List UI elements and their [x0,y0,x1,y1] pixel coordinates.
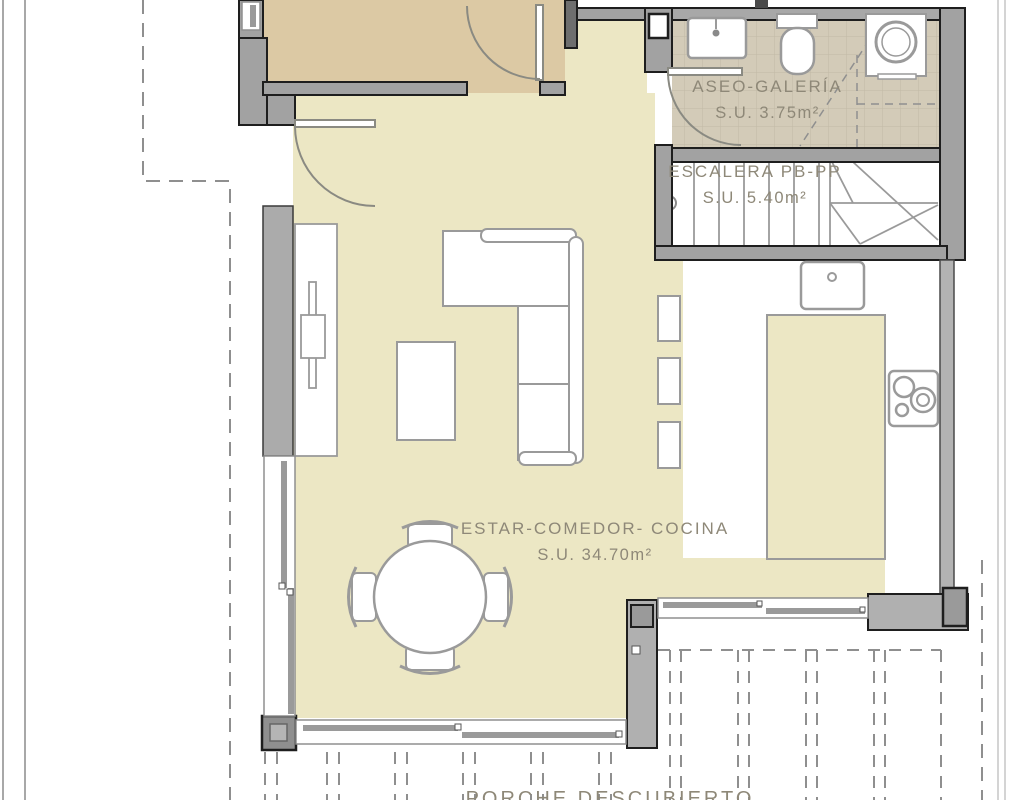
door-handle [616,731,622,737]
window-handle [279,583,285,589]
room-area: S.U. 5.40m² [655,185,855,211]
sliding-door-kitchen-panel [663,602,762,608]
room-label-porche: PORCHE DESCUBIERTO [440,786,780,800]
sofa-armrest-right [569,237,583,463]
setback-dashed-line-left [143,0,230,800]
dining-chair [484,573,508,621]
east-exterior-wall [940,8,965,260]
sliding-window-west-panel [281,461,287,588]
bedroom-window-glass [250,5,256,27]
bedroom-south-wall [263,82,467,95]
shelf-niche [658,422,680,468]
room-label-aseo: ASEO-GALERÍA S.U. 3.75m² [655,74,880,126]
toilet-cistern [777,14,817,28]
kitchen-east-wall [940,260,954,596]
shelf-niche [658,358,680,404]
window-handle [287,589,293,595]
washing-machine-drum-inner [882,28,910,56]
room-area: S.U. 34.70m² [450,542,740,568]
sliding-door-kitchen-panel [766,608,865,614]
coffee-table [397,342,455,440]
room-area: S.U. 3.75m² [655,100,880,126]
sliding-door-south-panel [462,732,619,738]
living-west-wall [263,206,293,456]
southeast-column [943,588,967,626]
stair-winder-line [860,205,938,244]
room-name: ESCALERA PB-PP [655,159,855,185]
entry-wall-jog [267,95,295,125]
kitchen-island [767,315,885,559]
stair-winder-line [853,162,938,240]
entry-door-leaf [295,120,375,127]
upper-fixture-cut [755,0,768,8]
room-name: ESTAR-COMEDOR- COCINA [450,516,740,542]
tv-bracket [301,315,325,358]
sofa-armrest-top [481,229,576,242]
shelf-niche [658,296,680,341]
room-label-escalera: ESCALERA PB-PP S.U. 5.40m² [655,159,855,211]
kitchen-sink [801,262,864,309]
door-handle [455,724,461,730]
door-handle [860,607,865,612]
duct-shaft [649,14,668,38]
bedroom-south-wall-stub [540,82,565,95]
sliding-door-south-panel [303,725,458,731]
bedroom-door-leaf [536,5,543,80]
toilet-bowl [781,28,814,74]
south-partition-column [631,605,653,627]
bedroom-floor [263,0,565,95]
sliding-window-west-panel [288,588,294,714]
sofa-armrest-bottom [519,452,576,465]
room-name: ASEO-GALERÍA [655,74,880,100]
sink-faucet [713,30,720,37]
partition-handle [632,646,640,654]
kitchen [658,262,938,559]
hallway-north-wall [577,8,647,20]
southwest-column-core [270,724,287,741]
bedroom-east-wall [565,0,577,48]
floor-plan: ASEO-GALERÍA S.U. 3.75m² ESCALERA PB-PP … [0,0,1024,800]
stairs-south-wall [655,246,947,260]
dining-chair [352,573,376,621]
washing-machine-tray [878,74,916,79]
room-label-estar: ESTAR-COMEDOR- COCINA S.U. 34.70m² [450,516,740,568]
room-name: PORCHE DESCUBIERTO [440,786,780,800]
door-handle [757,601,762,606]
